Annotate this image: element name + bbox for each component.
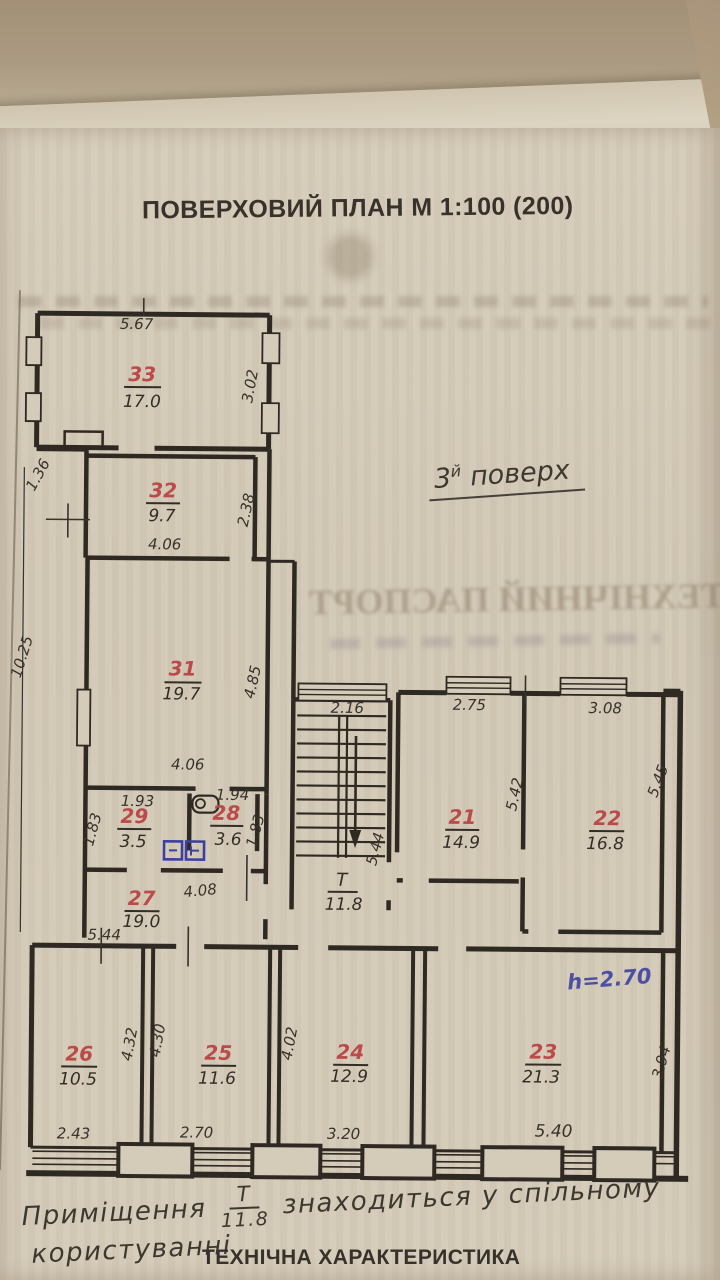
dim-label: 3.20 [327, 1125, 361, 1143]
dim-label: 4.32 [118, 1026, 142, 1062]
dim-label: 1.36 [22, 456, 54, 494]
room-area: 21.3 [522, 1067, 560, 1087]
room-fraction: Т 11.8 [219, 1183, 269, 1231]
room-area: 3.5 [119, 832, 146, 852]
dim-label: 10.25 [7, 633, 37, 679]
room-area: 3.6 [215, 830, 242, 850]
note-word: Приміщення [21, 1194, 207, 1232]
dim-label: 2.16 [330, 699, 364, 717]
room-number: 28 [212, 801, 240, 825]
scanned-page: ПОВЕРХОВИЙ ПЛАН М 1:100 (200) ТЕХНІЧНИЙ … [0, 0, 720, 1280]
room-number: 21 [448, 805, 476, 829]
room-area: 11.6 [198, 1069, 236, 1089]
dim-label: 3.02 [238, 368, 262, 404]
dim-label: 3.08 [589, 699, 623, 717]
room-area: 14.9 [442, 833, 480, 853]
dim-label: 2.75 [453, 696, 487, 714]
dim-label: 1.94 [216, 786, 250, 804]
room-number: 24 [336, 1040, 364, 1064]
dim-label: 5.40 [535, 1122, 573, 1142]
room-area: 12.9 [330, 1067, 368, 1087]
section-heading: ТЕХНІЧНА ХАРАКТЕРИСТИКА [202, 1246, 520, 1270]
room-area: 19.0 [122, 912, 160, 932]
room-area: 17.0 [123, 392, 161, 412]
fraction-top: Т [228, 1183, 259, 1209]
dim-label: 3.94 [648, 1044, 674, 1081]
fraction-bottom: 11.8 [220, 1208, 269, 1231]
dim-label: 5.45 [644, 762, 673, 800]
stair-direction-arrow [355, 736, 356, 834]
dim-label: 4.06 [171, 755, 205, 773]
dim-label: 4.06 [148, 535, 182, 553]
room-number: 25 [204, 1041, 232, 1065]
sink-symbol [164, 841, 204, 859]
height-note: h=2.70 [566, 964, 652, 995]
room-area: 10.5 [59, 1069, 97, 1089]
stair-label-bottom: 11.8 [325, 895, 363, 915]
room-area: 19.7 [162, 684, 200, 704]
room-area: 9.7 [148, 506, 175, 526]
room-number: 32 [149, 478, 177, 502]
floor-plan-drawing: 33 17.0 32 9.7 31 19.7 29 3.5 28 3.6 [0, 0, 720, 1280]
dim-label: 2.43 [57, 1124, 91, 1142]
room-number: 22 [593, 806, 621, 830]
dim-label: 5.44 [362, 831, 388, 868]
stair-label-top: Т [336, 870, 349, 891]
dim-label: 2.70 [180, 1123, 214, 1141]
dim-label: 5.44 [88, 926, 122, 944]
floor-note-sup: й [450, 461, 462, 481]
dim-label: 4.30 [146, 1022, 170, 1058]
room-number: 26 [65, 1041, 93, 1065]
dim-label: 4.85 [240, 664, 265, 701]
dim-label: 5.67 [120, 315, 154, 333]
dim-label: 1.93 [121, 792, 155, 810]
room-area: 16.8 [586, 834, 624, 854]
dim-label: 4.08 [183, 880, 218, 901]
room-number: 27 [128, 886, 156, 910]
room-number: 33 [128, 362, 156, 386]
room-number: 31 [169, 656, 197, 680]
room-number: 23 [529, 1039, 557, 1063]
floor-note-word: поверх [469, 455, 571, 493]
